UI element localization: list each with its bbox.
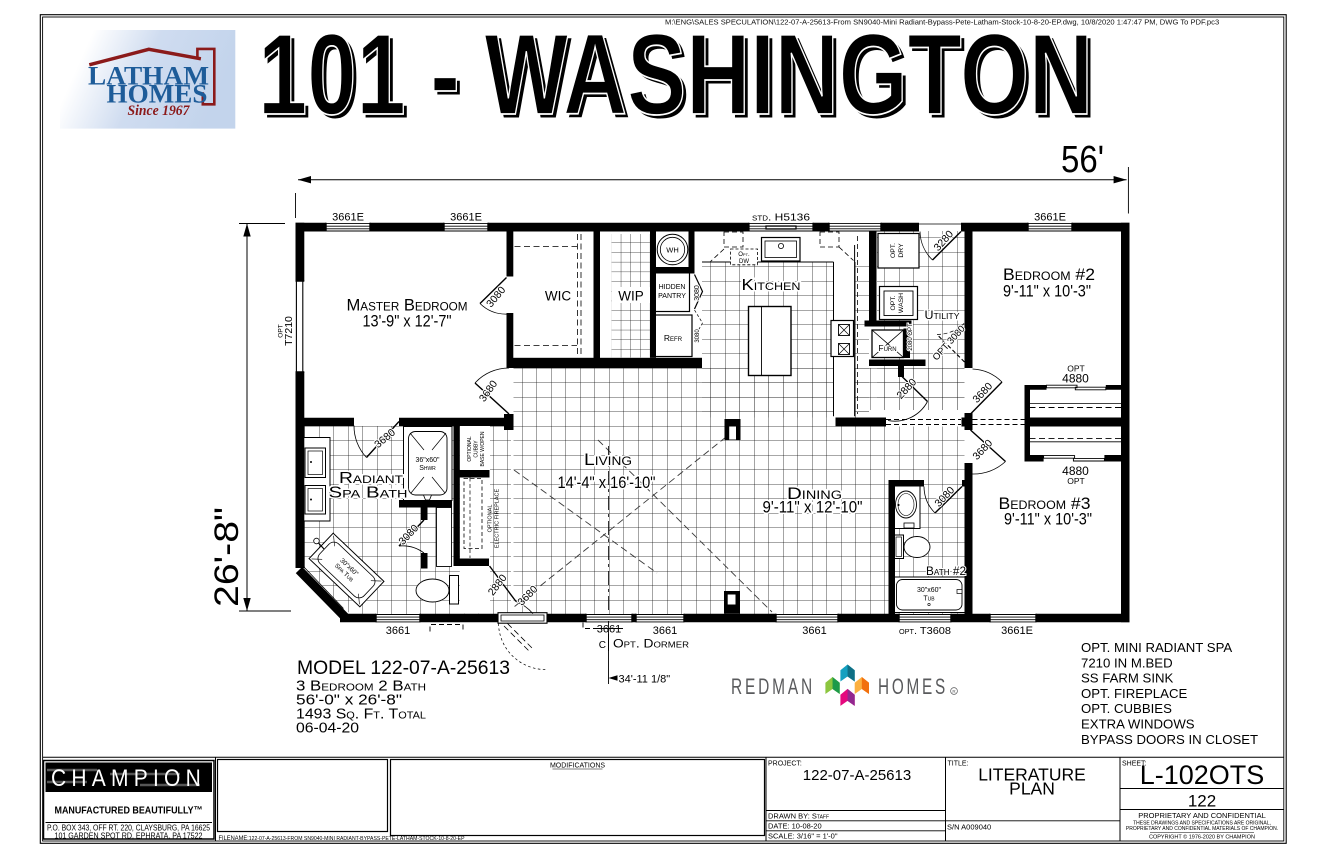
svg-text:9'-11" x 10'-3": 9'-11" x 10'-3"	[1004, 511, 1092, 529]
svg-text:MODIFICATIONS: MODIFICATIONS	[550, 763, 605, 770]
svg-text:OPT.: OPT.	[890, 295, 897, 310]
svg-text:COPYRIGHT © 1976-2020 BY CHAMP: COPYRIGHT © 1976-2020 BY CHAMPION	[1149, 834, 1255, 841]
svg-text:30"x60": 30"x60"	[917, 587, 942, 594]
svg-text:REDMAN: REDMAN	[731, 674, 815, 699]
svg-text:WASH: WASH	[898, 293, 905, 313]
svg-text:DATE: 10-08-20: DATE: 10-08-20	[768, 822, 822, 831]
svg-text:EXTRA WINDOWS: EXTRA WINDOWS	[1081, 717, 1195, 732]
svg-text:Spa Bath: Spa Bath	[329, 485, 408, 502]
svg-text:3080: 3080	[484, 284, 508, 310]
svg-text:26'-8": 26'-8"	[208, 507, 246, 607]
svg-text:3661: 3661	[653, 625, 677, 637]
svg-text:3661: 3661	[597, 624, 621, 636]
svg-text:OPT.: OPT.	[890, 243, 897, 258]
svg-text:MODEL 122-07-A-25613: MODEL 122-07-A-25613	[297, 657, 510, 679]
svg-text:ELECTRIC FIREPLACE: ELECTRIC FIREPLACE	[495, 489, 501, 549]
svg-text:OPTIONAL: OPTIONAL	[488, 505, 494, 533]
svg-text:L-102OTS: L-102OTS	[1140, 760, 1265, 790]
svg-text:3080: 3080	[694, 285, 701, 301]
svg-text:MANUFACTURED BEAUTIFULLY™: MANUFACTURED BEAUTIFULLY™	[55, 805, 203, 817]
svg-text:Since 1967: Since 1967	[128, 103, 191, 119]
svg-text:9'-11" x 10'-3": 9'-11" x 10'-3"	[1003, 283, 1091, 301]
svg-text:3680: 3680	[970, 437, 995, 462]
svg-text:Bedroom #2: Bedroom #2	[1003, 265, 1095, 284]
svg-text:CHAMPION: CHAMPION	[51, 765, 206, 792]
svg-text:WIC: WIC	[545, 289, 571, 304]
svg-text:Tub: Tub	[923, 596, 935, 603]
svg-text:PROPRIETARY AND CONFIDENTIAL M: PROPRIETARY AND CONFIDENTIAL MATERIALS O…	[1126, 826, 1278, 832]
svg-text:HOMES: HOMES	[878, 674, 948, 699]
svg-text:101 GARDEN SPOT RD. EPHRATA,: 101 GARDEN SPOT RD. EPHRATA, PA 17522	[55, 832, 203, 841]
svg-text:14'-4" x 16'-10": 14'-4" x 16'-10"	[558, 474, 656, 492]
svg-text:Opt.: Opt.	[738, 252, 750, 258]
svg-text:3661: 3661	[802, 625, 826, 637]
svg-text:7210 IN M.BED: 7210 IN M.BED	[1081, 655, 1173, 670]
svg-text:BASE W/OPEN: BASE W/OPEN	[480, 431, 486, 466]
svg-text:DRY: DRY	[898, 243, 905, 258]
svg-text:3661E: 3661E	[1034, 212, 1066, 224]
svg-text:DRAWN BY: Staff: DRAWN BY: Staff	[768, 812, 829, 821]
svg-text:WH: WH	[666, 246, 679, 255]
svg-text:PROPRIETARY AND CONFIDENTIAL: PROPRIETARY AND CONFIDENTIAL	[1138, 811, 1266, 820]
svg-text:36"x60": 36"x60"	[415, 457, 440, 464]
svg-text:Shwr: Shwr	[419, 465, 436, 472]
svg-text:T7210: T7210	[283, 316, 295, 346]
svg-text:34'-11 1/8": 34'-11 1/8"	[619, 674, 671, 686]
svg-text:101 - WASHINGTON: 101 - WASHINGTON	[258, 11, 1093, 139]
svg-text:FILENAME:122-07-A-25613-FROM S: FILENAME:122-07-A-25613-FROM SN9040-MINI…	[219, 835, 465, 842]
svg-text:9'-11" x 12'-10": 9'-11" x 12'-10"	[763, 499, 863, 517]
svg-text:R: R	[952, 689, 956, 694]
svg-text:OPTIONAL: OPTIONAL	[467, 436, 473, 462]
svg-text:Opt. Dormer: Opt. Dormer	[613, 639, 689, 651]
svg-text:Furn: Furn	[878, 343, 896, 353]
svg-text:TITLE:: TITLE:	[948, 761, 969, 768]
svg-text:OPT. CUBBIES: OPT. CUBBIES	[1081, 701, 1172, 716]
svg-text:BYPASS DOORS IN CLOSET: BYPASS DOORS IN CLOSET	[1081, 732, 1258, 747]
svg-text:PANTRY: PANTRY	[658, 293, 686, 300]
svg-text:2080 OPT: 2080 OPT	[908, 323, 914, 351]
svg-text:56': 56'	[1061, 139, 1104, 181]
svg-text:HIDDEN: HIDDEN	[659, 284, 686, 291]
svg-text:122-07-A-25613: 122-07-A-25613	[803, 767, 911, 784]
svg-text:3680: 3680	[477, 378, 500, 404]
svg-text:3661E: 3661E	[1001, 625, 1033, 637]
svg-text:4880: 4880	[1062, 372, 1089, 386]
svg-text:13'-9" x 12'-7": 13'-9" x 12'-7"	[363, 313, 452, 331]
svg-text:SCALE: 3/16" = 1'-0": SCALE: 3/16" = 1'-0"	[768, 832, 838, 841]
svg-text:std. H5136: std. H5136	[752, 212, 810, 224]
svg-text:CUBBY: CUBBY	[474, 440, 480, 458]
svg-text:Bath #2: Bath #2	[926, 566, 966, 578]
svg-text:PLAN: PLAN	[1009, 779, 1055, 799]
svg-text:122: 122	[1188, 792, 1216, 811]
svg-text:OPT: OPT	[1067, 476, 1084, 486]
svg-text:Kitchen: Kitchen	[742, 277, 801, 294]
svg-text:C: C	[599, 640, 606, 651]
svg-text:3661: 3661	[386, 625, 410, 637]
svg-text:Refr: Refr	[664, 333, 683, 343]
svg-text:3661E: 3661E	[450, 212, 482, 224]
svg-text:S/N A009040: S/N A009040	[947, 823, 991, 832]
svg-text:3080: 3080	[695, 329, 701, 343]
svg-text:OPT. FIREPLACE: OPT. FIREPLACE	[1081, 686, 1187, 701]
svg-text:Living: Living	[584, 450, 632, 469]
svg-text:DW: DW	[739, 259, 749, 265]
svg-text:PROJECT:: PROJECT:	[768, 761, 802, 768]
svg-text:opt. T3608: opt. T3608	[899, 625, 951, 637]
svg-text:SS FARM SINK: SS FARM SINK	[1081, 671, 1174, 686]
svg-text:06-04-20: 06-04-20	[296, 721, 359, 737]
svg-text:WIP: WIP	[618, 289, 644, 304]
svg-text:OPT. MINI RADIANT SPA: OPT. MINI RADIANT SPA	[1081, 640, 1232, 655]
svg-text:Utility: Utility	[925, 310, 961, 322]
svg-text:3661E: 3661E	[332, 212, 364, 224]
